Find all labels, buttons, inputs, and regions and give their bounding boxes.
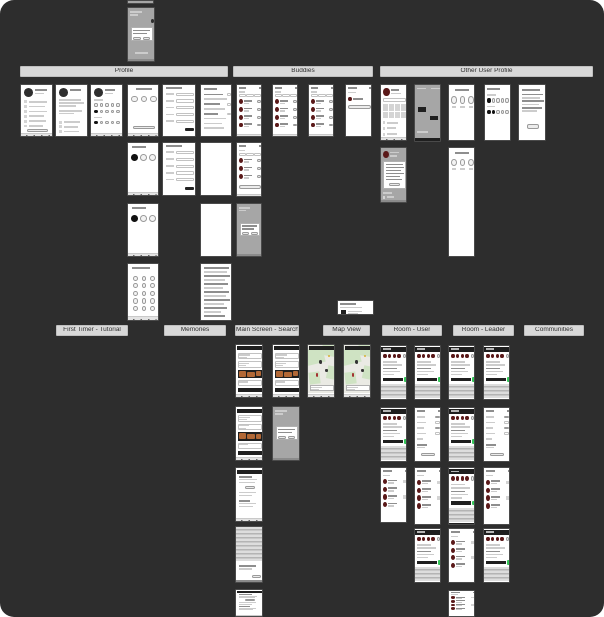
circle-icon [133, 291, 138, 296]
text-line [204, 113, 219, 115]
text-line [451, 433, 468, 435]
text-line [239, 428, 246, 429]
section-label: Other User Profile [460, 68, 512, 75]
circle-icon [471, 476, 475, 481]
text-line [348, 311, 362, 313]
circle-icon [506, 537, 510, 542]
text-line [486, 438, 493, 440]
frame-chat[interactable] [448, 407, 475, 462]
circle-icon [501, 98, 504, 102]
thumbnail [59, 130, 62, 133]
thumbnail [24, 115, 27, 118]
text-line [166, 158, 174, 160]
text-line [456, 609, 463, 610]
field [326, 94, 333, 97]
keyboard [415, 384, 441, 398]
text-line [275, 413, 283, 415]
frame-other-profile[interactable] [380, 84, 407, 141]
button [504, 416, 509, 419]
text-line [130, 14, 138, 16]
text-line [340, 303, 356, 305]
avatar-icon [486, 537, 490, 542]
section-label: Profile [115, 68, 133, 75]
bar [484, 582, 510, 584]
send-button [507, 560, 510, 565]
text-line [422, 496, 431, 498]
frame-gray-modal[interactable] [272, 406, 300, 461]
field [290, 94, 297, 97]
circle-icon [496, 110, 499, 114]
circle-icon [133, 283, 138, 288]
frame-chat[interactable] [448, 467, 475, 525]
text-line [204, 267, 229, 269]
bar [449, 399, 475, 401]
text-line [276, 354, 286, 355]
text-line [456, 563, 465, 565]
section-header-first-timer-tutorial[interactable]: First Timer - Tutorial [56, 325, 128, 336]
map-dot [328, 355, 330, 357]
text-line [417, 374, 428, 376]
field [176, 99, 194, 102]
avatar-icon [465, 476, 469, 481]
frame-chat[interactable] [483, 345, 510, 400]
text-line [451, 471, 459, 473]
text-line [132, 267, 150, 269]
text-line [278, 432, 292, 434]
circle-icon [140, 215, 147, 222]
text-line [244, 169, 250, 171]
frame-keyboard-overlay[interactable] [235, 526, 263, 583]
avatar-icon [451, 354, 455, 359]
text-line [390, 155, 397, 157]
section-header-main-screen-search[interactable]: Main Screen - Search [235, 325, 299, 336]
thumbnail [403, 480, 406, 483]
text-line [239, 604, 253, 605]
tabbar-icons [381, 137, 407, 141]
frame-filters[interactable] [127, 84, 159, 137]
circle-icon [451, 159, 457, 166]
text-line [391, 89, 399, 91]
field [246, 153, 253, 156]
frame-map[interactable] [343, 344, 371, 398]
text-line [451, 592, 460, 593]
bar [238, 451, 263, 455]
frame-text-list[interactable] [200, 84, 232, 137]
text-line [133, 30, 150, 32]
text-line [451, 423, 466, 425]
avatar-icon [239, 174, 243, 179]
frame-search-feed[interactable] [272, 344, 300, 398]
frame-photo-overlay[interactable] [414, 84, 441, 142]
frame-filter-select[interactable] [127, 203, 159, 257]
text-line [348, 92, 356, 93]
avatar-icon [417, 495, 421, 500]
keyboard [415, 567, 441, 581]
send-button [472, 501, 475, 506]
thumbnail [395, 104, 400, 110]
circle-icon [142, 291, 147, 296]
bar [415, 582, 441, 584]
frame-search-text[interactable] [235, 467, 263, 522]
tabbar-icons [21, 133, 53, 137]
text-line [486, 470, 495, 472]
avatar-icon [311, 115, 315, 120]
text-line [239, 87, 247, 89]
frame-strip[interactable] [127, 0, 154, 4]
text-line [239, 479, 258, 480]
text-line [405, 470, 407, 472]
thumbnail [471, 556, 474, 559]
frame-room-settings[interactable] [483, 407, 510, 462]
avatar-icon [431, 537, 435, 542]
section-header-communities[interactable]: Communities [524, 325, 584, 336]
text-line [275, 87, 283, 89]
avatar-icon [451, 596, 455, 598]
send-button [438, 560, 441, 565]
bar [237, 254, 262, 257]
text-line [486, 475, 493, 476]
button [143, 37, 151, 40]
frame-room-list[interactable] [448, 590, 475, 617]
frame-badges[interactable] [484, 84, 511, 141]
text-line [388, 505, 395, 506]
frame-search-feed[interactable] [235, 344, 263, 398]
text-line [166, 120, 174, 122]
button [329, 100, 334, 103]
text-line [417, 554, 434, 556]
frame-buddies-list[interactable] [236, 84, 262, 137]
bar [309, 346, 334, 349]
frame-blank[interactable] [200, 142, 232, 196]
avatar-icon [456, 476, 460, 481]
avatar-icon [451, 540, 455, 545]
thumbnail [383, 133, 385, 136]
text-line [204, 98, 227, 100]
text-line [417, 447, 425, 448]
frame-text-dense[interactable] [200, 263, 232, 321]
text-line [386, 173, 404, 174]
circle-icon [111, 103, 115, 106]
text-line [353, 98, 363, 100]
text-line [388, 482, 395, 483]
photo [293, 371, 298, 376]
text-line [132, 207, 147, 209]
button [245, 599, 255, 601]
thumbnail [437, 496, 440, 499]
photo [256, 371, 261, 376]
text-line [130, 11, 142, 13]
text-line [59, 113, 74, 115]
frame-circle-grid[interactable] [127, 263, 159, 321]
thumbnail [506, 481, 509, 484]
text-line [417, 544, 432, 546]
keyboard [449, 508, 475, 522]
text-line [469, 168, 473, 169]
text-line [311, 387, 321, 388]
avatar-icon [388, 354, 392, 359]
text-line [242, 225, 258, 227]
field [176, 151, 194, 154]
text-line [486, 410, 494, 412]
avatar-icon [59, 88, 68, 97]
bar [238, 388, 263, 392]
frame-mute-circles[interactable] [448, 84, 475, 141]
text-line [456, 598, 463, 599]
field [318, 94, 325, 97]
frame-profile-interests[interactable] [90, 84, 123, 137]
frame-chat[interactable] [414, 528, 441, 583]
text-line [239, 495, 253, 496]
circle-icon [150, 291, 155, 296]
text-line [280, 123, 288, 125]
frame-search-feed[interactable] [235, 406, 263, 461]
circle-icon [131, 96, 138, 103]
bar [237, 470, 263, 474]
text-line [383, 436, 394, 438]
frame-buddies-list[interactable] [272, 84, 298, 137]
circle-icon [111, 110, 115, 113]
frame-chat[interactable] [448, 345, 475, 400]
text-line [451, 484, 466, 486]
text-line [388, 503, 397, 505]
text-line [507, 410, 509, 412]
text-line [487, 88, 499, 90]
circle-icon [105, 103, 109, 106]
bar [430, 116, 438, 121]
avatar-icon [383, 494, 387, 499]
frame-buddies-invite[interactable] [345, 84, 372, 137]
frame-chat[interactable] [380, 345, 407, 400]
text-line [417, 427, 424, 429]
frame-room-list[interactable] [380, 467, 407, 523]
text-line [417, 557, 428, 559]
field [246, 94, 253, 97]
text-line [451, 594, 458, 595]
text-line [486, 444, 497, 446]
text-line [383, 430, 398, 432]
frame-blank[interactable] [200, 203, 232, 257]
text-line [422, 491, 429, 492]
text-line [29, 120, 46, 122]
send-button [507, 377, 510, 382]
text-line [316, 110, 322, 111]
frame-mute-tall[interactable] [448, 147, 475, 257]
frame-profile-info[interactable] [55, 84, 88, 137]
text-line [29, 111, 47, 113]
text-line [486, 551, 501, 553]
circle-icon [116, 121, 120, 124]
frame-room-list[interactable] [483, 467, 510, 525]
send-button [472, 439, 475, 444]
text-line [491, 491, 498, 492]
frame-gray-note[interactable] [380, 147, 407, 203]
text-line [244, 126, 250, 127]
text-line [239, 565, 256, 567]
bar [417, 378, 437, 382]
design-canvas[interactable]: ProfileBuddiesOther User ProfileFirst Ti… [0, 0, 604, 617]
text-line [431, 88, 439, 90]
text-line [486, 371, 503, 373]
circle-icon [506, 354, 510, 359]
text-line [486, 374, 497, 376]
frame-chat[interactable] [380, 407, 407, 462]
button [185, 187, 194, 190]
text-line [391, 93, 402, 95]
text-line [369, 87, 371, 89]
text-line [204, 123, 222, 125]
avatar-icon [451, 607, 455, 609]
text-line [166, 114, 174, 116]
avatar-icon [461, 354, 465, 359]
text-line [390, 152, 399, 154]
text-line [417, 416, 425, 418]
field [504, 421, 510, 424]
field [282, 94, 289, 97]
text-line [35, 89, 47, 91]
field [239, 94, 246, 97]
circle-icon [471, 354, 475, 359]
button [389, 183, 400, 186]
text-line [166, 179, 174, 181]
text-line [239, 354, 249, 355]
text-line [451, 536, 458, 537]
frame-form[interactable] [162, 142, 196, 196]
frame-buddies-list-btn[interactable] [236, 142, 262, 197]
frame-filter-select[interactable] [127, 142, 159, 196]
text-line [204, 103, 220, 105]
avatar-icon [239, 115, 243, 120]
frame-form[interactable] [162, 84, 196, 137]
text-line [383, 423, 398, 425]
avatar-icon [496, 354, 500, 359]
text-line [295, 87, 297, 89]
text-line [417, 551, 432, 553]
text-line [239, 363, 248, 364]
avatar-icon [465, 354, 469, 359]
text-line [451, 410, 459, 412]
text-line [417, 131, 428, 133]
text-line [316, 123, 324, 125]
button [329, 124, 334, 127]
photo [239, 371, 246, 377]
avatar-icon [393, 416, 397, 421]
section-header-memories[interactable]: Memories [164, 325, 226, 336]
text-line [132, 146, 147, 148]
text-line [64, 126, 78, 128]
circle-icon [492, 98, 495, 102]
text-line [331, 87, 333, 89]
avatar-icon [496, 537, 500, 542]
frame-notification-widget[interactable] [337, 300, 374, 315]
circle-icon [111, 121, 115, 124]
bar [274, 346, 300, 350]
section-header-profile[interactable]: Profile [20, 66, 228, 77]
text-line [244, 175, 252, 177]
bar [451, 378, 471, 382]
avatar-icon [383, 151, 389, 158]
button [293, 116, 298, 119]
text-line [522, 100, 544, 102]
frame-gray-dialog[interactable] [127, 7, 155, 62]
text-line [387, 196, 394, 198]
text-line [166, 172, 174, 174]
thumbnail [471, 597, 474, 598]
text-line [456, 541, 465, 543]
thumbnail [59, 121, 62, 124]
text-line [59, 102, 84, 104]
avatar-icon [427, 354, 431, 359]
text-line [204, 291, 229, 293]
text-line [242, 228, 255, 229]
bar [449, 461, 475, 463]
text-line [486, 433, 495, 435]
send-button [404, 439, 407, 444]
bar [415, 399, 441, 401]
text-line [244, 118, 250, 119]
text-line [387, 133, 397, 135]
frame-search-text[interactable] [235, 589, 263, 617]
button [251, 232, 258, 235]
avatar-icon [431, 354, 435, 359]
text-line [244, 167, 252, 169]
frame-room-list[interactable] [448, 528, 475, 583]
circle-icon [116, 103, 120, 106]
button [239, 185, 260, 189]
selected-dot [131, 154, 138, 161]
text-line [451, 361, 466, 363]
frame-chat[interactable] [483, 528, 510, 583]
tabbar-icons [128, 253, 159, 257]
bar [128, 59, 155, 62]
text-line [417, 361, 432, 363]
keyboard [381, 384, 407, 398]
text-line [486, 361, 501, 363]
section-header-room-user[interactable]: Room - User [382, 325, 442, 336]
section-header-room-leader[interactable]: Room - Leader [453, 325, 514, 336]
text-line [204, 127, 224, 129]
text-line [280, 108, 288, 110]
text-line [311, 87, 319, 89]
circle-icon [150, 298, 155, 303]
photo [247, 434, 255, 439]
section-header-map-view[interactable]: Map View [323, 325, 370, 336]
frame-chat[interactable] [414, 345, 441, 400]
text-line [70, 89, 81, 91]
section-label: Map View [332, 327, 360, 334]
avatar-icon [451, 604, 455, 606]
frame-text-button[interactable] [518, 84, 546, 141]
button [293, 124, 298, 127]
text-line [388, 495, 397, 497]
avatar-icon [451, 416, 455, 421]
frame-buddies-list[interactable] [308, 84, 334, 137]
section-header-buddies[interactable]: Buddies [233, 66, 373, 77]
section-header-other-user-profile[interactable]: Other User Profile [380, 66, 593, 77]
frame-gray-modal[interactable] [236, 203, 262, 257]
text-line [486, 416, 494, 418]
frame-profile-menu[interactable] [20, 84, 53, 137]
section-label: Main Screen - Search [236, 327, 298, 334]
avatar-icon [491, 537, 495, 542]
frame-room-list[interactable] [414, 467, 441, 525]
text-line [491, 480, 500, 482]
photo [247, 372, 255, 377]
frame-room-settings[interactable] [414, 407, 441, 462]
frame-map[interactable] [307, 344, 335, 398]
keyboard [449, 446, 475, 460]
thumbnail [437, 481, 440, 484]
text-line [422, 488, 431, 490]
